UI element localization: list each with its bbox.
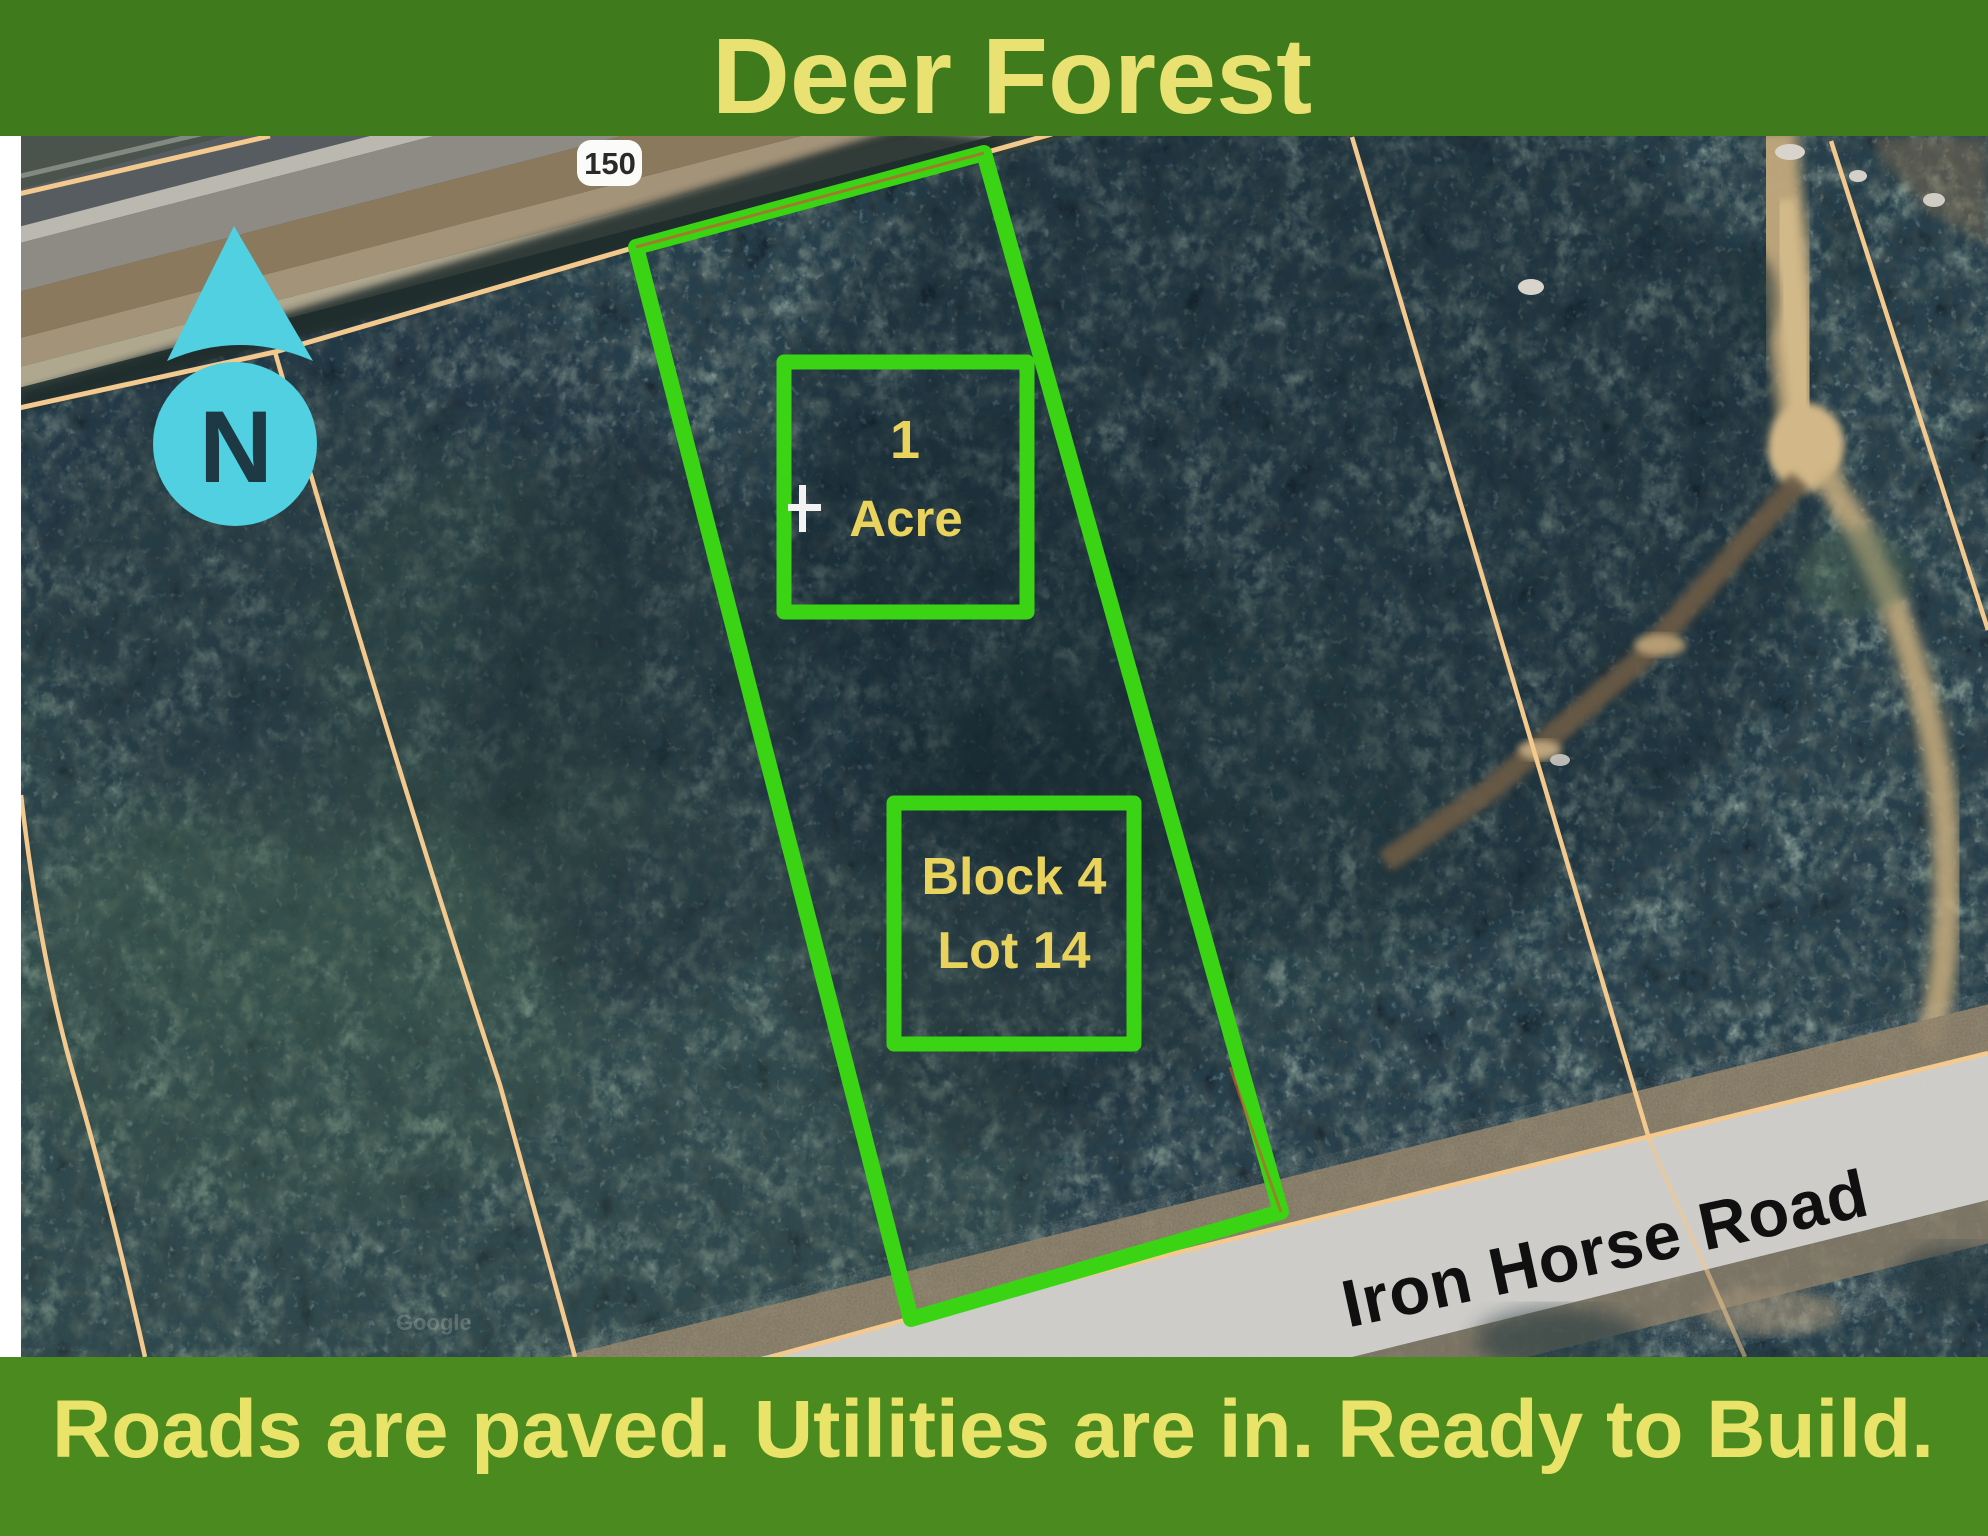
svg-text:150: 150	[584, 146, 636, 181]
svg-text:Roads are paved. Utilities are: Roads are paved. Utilities are in. Ready…	[52, 1384, 1934, 1475]
svg-text:Block 4: Block 4	[922, 848, 1107, 906]
svg-text:1: 1	[890, 410, 920, 470]
svg-text:Deer Forest: Deer Forest	[712, 15, 1312, 136]
svg-text:Google: Google	[396, 1310, 472, 1335]
svg-text:N: N	[199, 390, 273, 504]
svg-text:Lot 14: Lot 14	[937, 922, 1090, 980]
svg-text:Acre: Acre	[849, 490, 962, 547]
